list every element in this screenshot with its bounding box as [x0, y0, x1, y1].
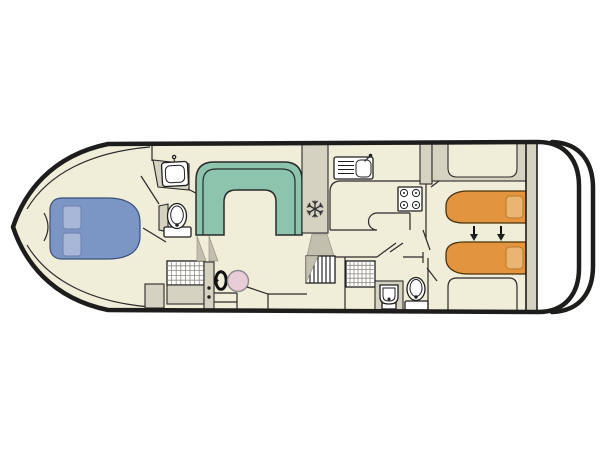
bed-pillow-orange — [506, 196, 523, 218]
stern-deck — [537, 144, 578, 410]
floor-plan-svg — [0, 0, 600, 450]
toilet-flush-dot — [414, 295, 417, 298]
washbasin-icon — [380, 285, 398, 309]
kitchen-sink-icon — [334, 154, 373, 179]
shower-floor — [167, 285, 204, 304]
entry-step-block — [145, 284, 164, 308]
wardrobe-outline — [448, 144, 517, 177]
toilet-flush-dot — [175, 223, 179, 227]
corridor-wall-block — [420, 143, 432, 184]
fridge-cabinet — [302, 143, 328, 233]
faucet-dot — [369, 154, 373, 158]
bed-pillow — [63, 233, 81, 256]
bed-pillow-orange — [506, 247, 523, 269]
fridge-cabinet-body — [302, 143, 328, 233]
stern-bulkhead — [526, 142, 537, 312]
console-knob — [207, 295, 210, 298]
basin-drain-dot — [388, 298, 391, 301]
boat-floor-plan — [0, 0, 600, 450]
helm-seat — [228, 271, 249, 292]
shower-tray-icon — [346, 261, 375, 287]
stove-icon — [398, 187, 422, 211]
shower-tray-icon — [167, 261, 204, 285]
console-knob — [207, 286, 210, 289]
bed-pillow — [63, 206, 81, 229]
